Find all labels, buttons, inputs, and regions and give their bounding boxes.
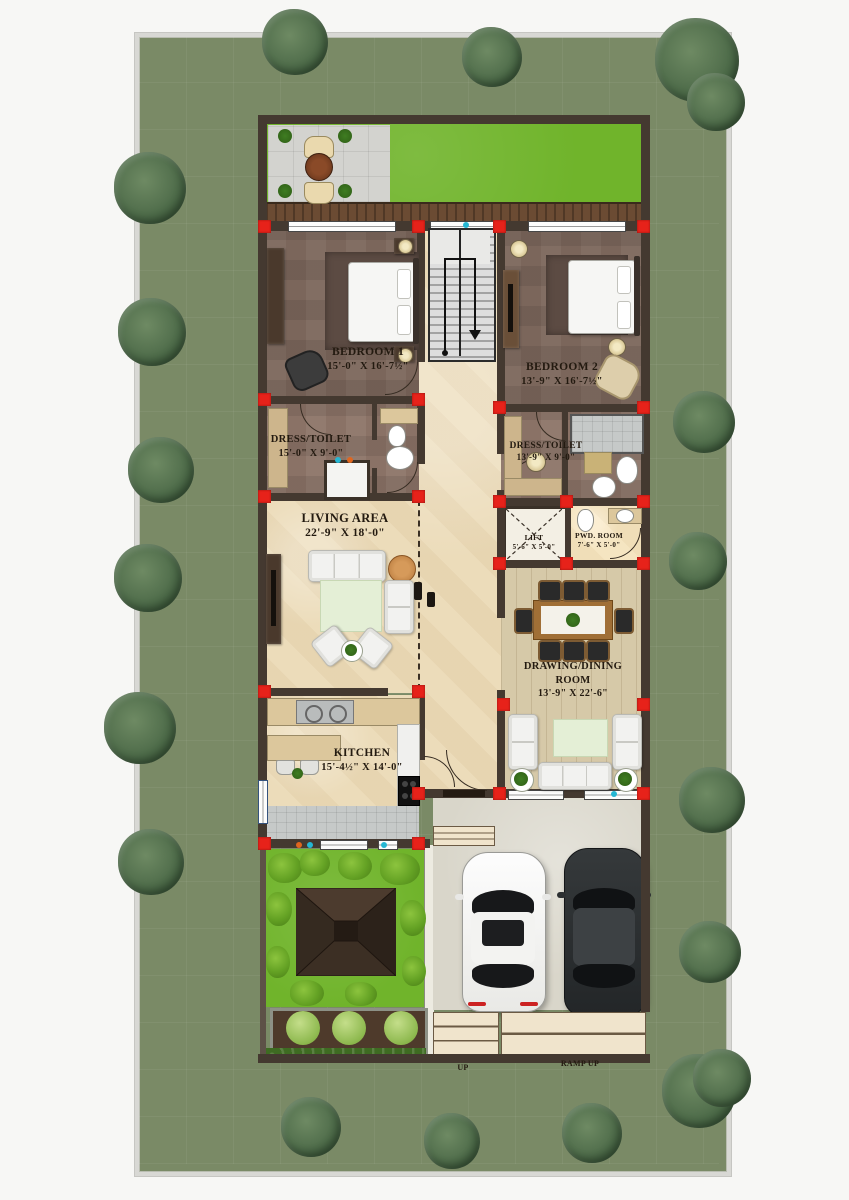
column-marker [412, 393, 425, 406]
bed-icon [348, 262, 416, 342]
shrub-icon [400, 900, 426, 936]
column-marker [637, 557, 650, 570]
loveseat-icon [612, 714, 642, 770]
headboard-icon [634, 256, 640, 336]
tree-icon [104, 692, 176, 764]
tv-icon [271, 570, 276, 626]
dining-chair-icon [562, 640, 586, 662]
wall [497, 498, 650, 506]
room-name: DRESS/TOILET [484, 440, 608, 452]
dining-chair-icon [538, 640, 562, 662]
car-taillight [468, 1002, 486, 1006]
ramp [501, 1012, 646, 1056]
column-marker [493, 401, 506, 414]
tree-icon [128, 437, 194, 503]
sofa-3seater-icon [538, 762, 612, 790]
patio-plant-icon [278, 129, 292, 143]
floor-plan-scene: BEDROOM 1 15'-0" X 16'-7½" BEDROOM 2 13'… [0, 0, 849, 1200]
dining-chair-icon [586, 580, 610, 602]
room-dims: 13'-9" X 16'-7½" [494, 375, 630, 389]
wall [497, 404, 650, 412]
wall [497, 490, 505, 618]
hob-icon [296, 700, 354, 724]
pillow-icon [397, 305, 411, 335]
tree-icon [114, 152, 186, 224]
column-marker [637, 787, 650, 800]
burner [402, 793, 408, 799]
annotation-up: UP [440, 1063, 486, 1073]
stair-divider [459, 230, 461, 356]
white-car-icon [462, 852, 544, 1010]
plant-icon [345, 644, 357, 656]
kitchen-border-tiles [266, 806, 419, 843]
column-marker [412, 787, 425, 800]
wardrobe-icon [267, 248, 284, 344]
stair-path-dot [442, 350, 448, 356]
room-name: LIVING AREA [270, 510, 420, 526]
wall [258, 115, 650, 124]
room-dims: 15'-4½" X 14'-0" [292, 761, 432, 775]
staircase [428, 228, 496, 362]
toilet-icon [616, 456, 638, 484]
gazebo-roof-icon [296, 888, 396, 976]
wall [372, 468, 377, 496]
room-dims: 13'-9" X 9'-0" [484, 452, 608, 464]
car-mirror [557, 892, 566, 898]
tree-icon [562, 1103, 622, 1163]
utility-dot [296, 842, 302, 848]
hall-door-leaf [414, 582, 422, 600]
burner [329, 705, 347, 723]
wardrobe-icon [504, 478, 562, 496]
shrub-icon [268, 853, 302, 883]
tree-icon [281, 1097, 341, 1157]
annotation-ramp-up: RAMP UP [540, 1059, 620, 1069]
dining-chair-icon [514, 608, 534, 634]
wall [497, 560, 650, 568]
plant-icon [514, 772, 528, 786]
tree-icon [693, 1049, 751, 1107]
utility-dot [611, 791, 617, 797]
centerpiece-plant-icon [566, 613, 580, 627]
column-marker [493, 495, 506, 508]
pillow-icon [617, 266, 631, 294]
patio-plant-icon [338, 184, 352, 198]
room-label-bedroom2: BEDROOM 2 13'-9" X 16'-7½" [494, 360, 630, 389]
room-label-bedroom1: BEDROOM 1 15'-0" X 16'-7½" [298, 345, 438, 374]
room-name: ROOM [500, 674, 646, 688]
column-marker [493, 220, 506, 233]
tree-icon [669, 532, 727, 590]
room-dims: 13'-9" X 22'-6" [500, 687, 646, 700]
steps-up [433, 1012, 499, 1056]
column-marker [258, 393, 271, 406]
column-marker [258, 220, 271, 233]
dining-chair-icon [586, 640, 610, 662]
planter-bush-icon [332, 1011, 366, 1045]
column-marker [412, 220, 425, 233]
room-name: BEDROOM 1 [298, 345, 438, 360]
car-rear-window [573, 964, 635, 988]
pillow-icon [397, 269, 411, 299]
patio-table-icon [305, 153, 333, 181]
room-dims: 15'-0" X 9'-0" [246, 447, 376, 460]
wall [258, 688, 388, 696]
column-marker [493, 787, 506, 800]
shrub-icon [380, 853, 420, 885]
lamp-icon [510, 240, 528, 258]
plant-icon [618, 772, 632, 786]
patio-chair-icon [304, 182, 334, 204]
pillow-icon [617, 301, 631, 329]
wall [258, 396, 425, 404]
lamp-icon [398, 239, 413, 254]
dining-table-icon [533, 600, 613, 640]
room-label-dress2: DRESS/TOILET 13'-9" X 9'-0" [484, 440, 608, 464]
room-name: DRESS/TOILET [246, 433, 376, 447]
side-table-icon [388, 555, 416, 583]
stair-arrow-icon [469, 330, 481, 340]
column-marker [560, 557, 573, 570]
vanity-counter [380, 408, 418, 424]
room-dims: 7'-6" X 5'-0" [566, 541, 632, 550]
column-marker [493, 557, 506, 570]
window-icon [528, 221, 626, 232]
stair-path [474, 258, 476, 332]
tree-icon [687, 73, 745, 131]
shrub-icon [402, 956, 426, 986]
car-roof [573, 908, 635, 966]
sofa-3seater-icon [308, 550, 386, 582]
column-marker [637, 220, 650, 233]
shrub-icon [345, 982, 377, 1006]
car-taillight [520, 1002, 538, 1006]
toilet-icon [577, 509, 594, 532]
room-dims: 15'-0" X 16'-7½" [298, 360, 438, 374]
tree-icon [118, 298, 186, 366]
room-label-pwd: PWD. ROOM 7'-6" X 5'-0" [566, 531, 632, 550]
column-marker [258, 490, 271, 503]
tree-icon [424, 1113, 480, 1169]
utility-dot [463, 222, 469, 228]
planter-bush-icon [286, 1011, 320, 1045]
dining-chair-icon [538, 580, 562, 602]
bed-icon [568, 260, 636, 334]
shrub-icon [266, 946, 290, 978]
washbasin-icon [592, 476, 616, 498]
planter-bush-icon [384, 1011, 418, 1045]
room-label-kitchen: KITCHEN 15'-4½" X 14'-0" [292, 746, 432, 775]
tree-icon [118, 829, 184, 895]
column-marker [258, 837, 271, 850]
column-marker [412, 685, 425, 698]
tree-icon [673, 391, 735, 453]
car-sunroof [482, 920, 524, 946]
tree-icon [679, 767, 745, 833]
utility-dot [381, 842, 387, 848]
stair-path [444, 258, 446, 354]
drawing-rug [553, 719, 608, 757]
black-car-icon [564, 848, 644, 1014]
room-name: LIFT [505, 533, 563, 543]
entry-door-leaf [443, 790, 485, 797]
dining-chair-icon [614, 608, 634, 634]
stair-path [444, 258, 476, 260]
room-label-living: LIVING AREA 22'-9" X 18'-0" [270, 510, 420, 541]
wall [260, 845, 266, 1060]
burner [305, 705, 323, 723]
car-mirror [455, 894, 464, 900]
burner [402, 781, 408, 787]
loveseat-icon [508, 714, 538, 770]
shrub-icon [266, 892, 292, 926]
room-dims: 22'-9" X 18'-0" [270, 526, 420, 541]
column-marker [560, 495, 573, 508]
toilet-icon [388, 425, 406, 447]
window-icon [258, 780, 268, 824]
tree-icon [462, 27, 522, 87]
entry-steps [433, 826, 495, 846]
shrub-icon [290, 980, 324, 1006]
room-name: DRAWING/DINING [500, 660, 646, 674]
washbasin-icon [616, 509, 634, 523]
column-marker [412, 837, 425, 850]
sofa-chaise-icon [384, 580, 414, 634]
column-marker [637, 401, 650, 414]
car-mirror [542, 894, 551, 900]
shrub-icon [338, 852, 372, 880]
room-label-lift: LIFT 5'-6" X 5'-0" [505, 533, 563, 552]
column-marker [637, 495, 650, 508]
washbasin-icon [386, 446, 414, 470]
living-rug [320, 580, 382, 632]
hall-door-leaf [427, 592, 435, 607]
headboard-icon [413, 258, 419, 344]
patio-plant-icon [338, 129, 352, 143]
window-icon [320, 840, 368, 850]
dining-chair-icon [562, 580, 586, 602]
room-label-dining: DRAWING/DINING ROOM 13'-9" X 22'-6" [500, 660, 646, 700]
room-name: KITCHEN [292, 746, 432, 761]
tree-icon [114, 544, 182, 612]
utility-dot [307, 842, 313, 848]
room-name: PWD. ROOM [566, 531, 632, 541]
shower-icon [324, 460, 370, 500]
column-marker [412, 490, 425, 503]
car-rear-window [472, 964, 534, 988]
tv-icon [508, 284, 513, 332]
window-icon [508, 790, 564, 800]
patio-plant-icon [278, 184, 292, 198]
room-name: BEDROOM 2 [494, 360, 630, 375]
tree-icon [679, 921, 741, 983]
room-dims: 5'-6" X 5'-0" [505, 543, 563, 552]
room-label-dress1: DRESS/TOILET 15'-0" X 9'-0" [246, 433, 376, 460]
shrub-icon [300, 850, 330, 876]
column-marker [258, 685, 271, 698]
window-icon [288, 221, 396, 232]
tree-icon [262, 9, 328, 75]
